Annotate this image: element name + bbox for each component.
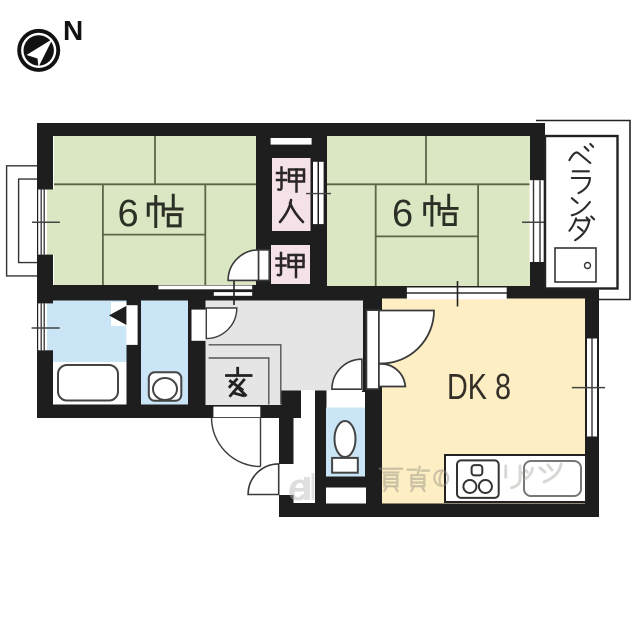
svg-text:N: N bbox=[63, 15, 83, 46]
svg-text:DK 8: DK 8 bbox=[447, 366, 511, 407]
svg-text:6: 6 bbox=[118, 193, 139, 235]
svg-text:6: 6 bbox=[392, 193, 413, 235]
